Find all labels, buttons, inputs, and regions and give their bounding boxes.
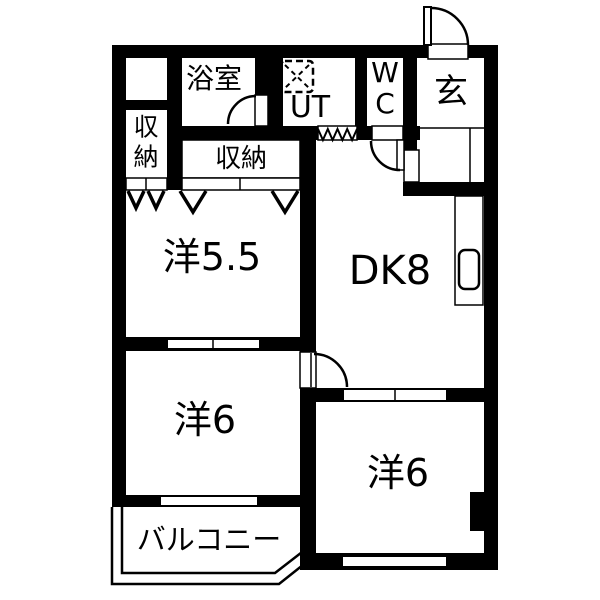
closet-front — [182, 178, 300, 190]
window — [342, 556, 447, 567]
wall-pillar — [470, 492, 484, 531]
room-label-bathroom: 浴室 — [186, 65, 242, 93]
wc-door-leaf — [397, 140, 404, 170]
bathroom-door-leaf — [255, 95, 268, 126]
balcony-window — [160, 496, 258, 506]
room-label-wc-line2: C — [375, 90, 395, 118]
room-label-dining-kitchen: DK8 — [349, 251, 431, 291]
wall — [268, 95, 283, 126]
entrance-doorway — [428, 44, 468, 59]
room-label-wc-line1: W — [371, 59, 399, 87]
kitchen-sink-icon — [459, 250, 479, 289]
room-label-western-6-left: 洋6 — [174, 401, 236, 439]
entrance-door-leaf — [424, 7, 431, 45]
room-label-entrance: 玄 — [434, 75, 468, 109]
wall — [403, 182, 498, 196]
room-label-utility: UT — [290, 93, 330, 123]
floorplan-canvas: 浴室 UT W C 玄 収 納 収納 洋5.5 DK8 洋6 洋6 バルコニー — [0, 0, 600, 600]
room-label-closet-left-line1: 収 — [133, 115, 158, 140]
room-label-balcony: バルコニー — [137, 526, 281, 555]
room-label-closet-top: 収納 — [215, 146, 267, 172]
wc-doorway — [372, 126, 403, 140]
wall — [167, 58, 182, 126]
wall — [112, 45, 126, 507]
wall — [403, 45, 417, 150]
genkan-step — [404, 150, 419, 182]
wall — [484, 45, 498, 570]
wall — [167, 140, 182, 190]
room-label-western-6-right: 洋6 — [367, 454, 429, 492]
wall — [126, 100, 167, 110]
room-label-western-5-5: 洋5.5 — [163, 238, 261, 276]
doorway — [300, 352, 316, 388]
room-label-closet-left-line2: 納 — [133, 145, 158, 170]
wall — [255, 58, 283, 95]
